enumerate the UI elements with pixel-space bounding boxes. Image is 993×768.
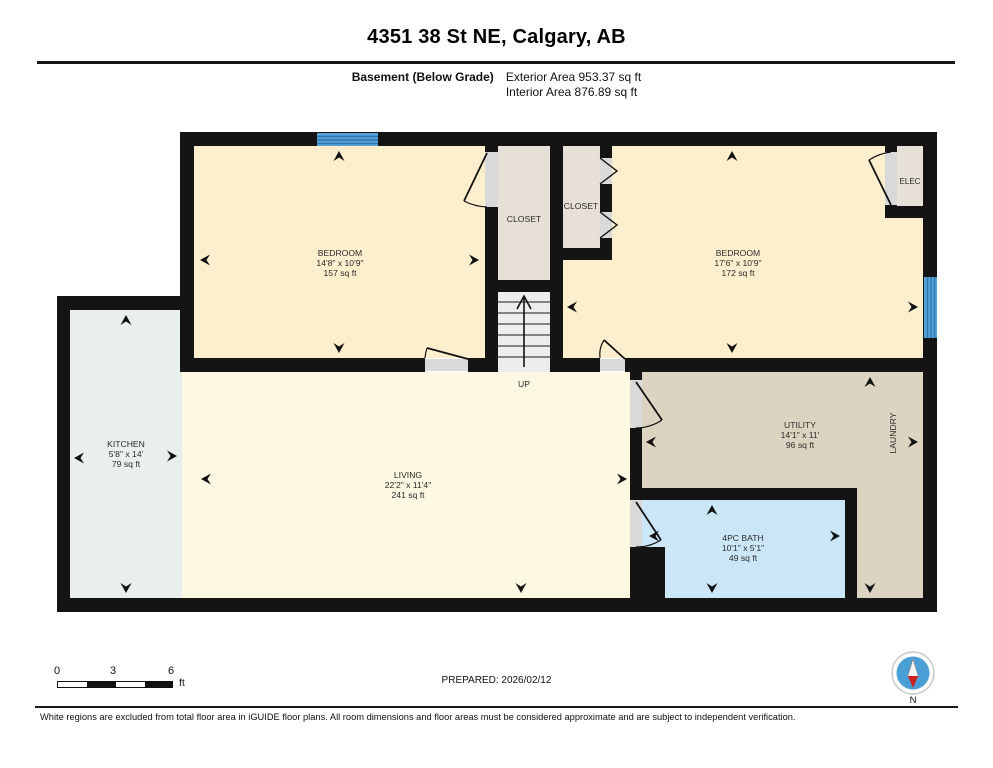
compass-label: N: [910, 695, 917, 706]
svg-text:157 sq ft: 157 sq ft: [324, 268, 358, 278]
disclaimer-text: White regions are excluded from total fl…: [40, 712, 973, 722]
kitchen-label: KITCHEN 5'8" x 14' 79 sq ft: [107, 439, 145, 469]
window-right: [924, 277, 937, 338]
svg-text:172 sq ft: 172 sq ft: [722, 268, 756, 278]
svg-text:5'8" x 14': 5'8" x 14': [109, 449, 144, 459]
closet-1-floor: [498, 146, 550, 280]
laundry-label: LAUNDRY: [888, 412, 898, 453]
floorplan-page: { "header": { "title": "4351 38 St NE, C…: [0, 0, 993, 768]
svg-text:17'6" x 10'9": 17'6" x 10'9": [714, 258, 761, 268]
footer-divider: [35, 706, 958, 708]
svg-text:10'1" x 5'1": 10'1" x 5'1": [722, 543, 764, 553]
utility-label: UTILITY 14'1" x 11' 96 sq ft: [781, 420, 820, 450]
bedroom-2-floor-ext: [563, 260, 612, 358]
closet-2-floor: [563, 146, 600, 248]
svg-text:KITCHEN: KITCHEN: [107, 439, 145, 449]
compass: [892, 652, 934, 694]
prepared-date: PREPARED: 2026/02/12: [0, 675, 993, 686]
svg-text:49 sq ft: 49 sq ft: [729, 553, 758, 563]
svg-text:14'8" x 10'9": 14'8" x 10'9": [316, 258, 363, 268]
svg-text:UTILITY: UTILITY: [784, 420, 816, 430]
window-top: [317, 133, 378, 146]
bedroom-2-floor: [612, 146, 923, 358]
elec-floor: [897, 146, 923, 206]
floorplan-svg: BEDROOM 14'8" x 10'9" 157 sq ft BEDROOM …: [0, 0, 993, 768]
svg-text:BEDROOM: BEDROOM: [318, 248, 362, 258]
closet-2-label: CLOSET: [564, 201, 599, 211]
svg-text:BEDROOM: BEDROOM: [716, 248, 760, 258]
svg-text:22'2" x 11'4": 22'2" x 11'4": [385, 480, 432, 490]
svg-text:79 sq ft: 79 sq ft: [112, 459, 141, 469]
svg-text:241 sq ft: 241 sq ft: [392, 490, 426, 500]
svg-text:96 sq ft: 96 sq ft: [786, 440, 815, 450]
svg-text:14'1" x 11': 14'1" x 11': [781, 430, 820, 440]
svg-text:LIVING: LIVING: [394, 470, 422, 480]
svg-text:4PC BATH: 4PC BATH: [722, 533, 763, 543]
elec-label: ELEC: [900, 177, 921, 186]
up-label: UP: [518, 379, 530, 389]
closet-1-label: CLOSET: [507, 214, 542, 224]
